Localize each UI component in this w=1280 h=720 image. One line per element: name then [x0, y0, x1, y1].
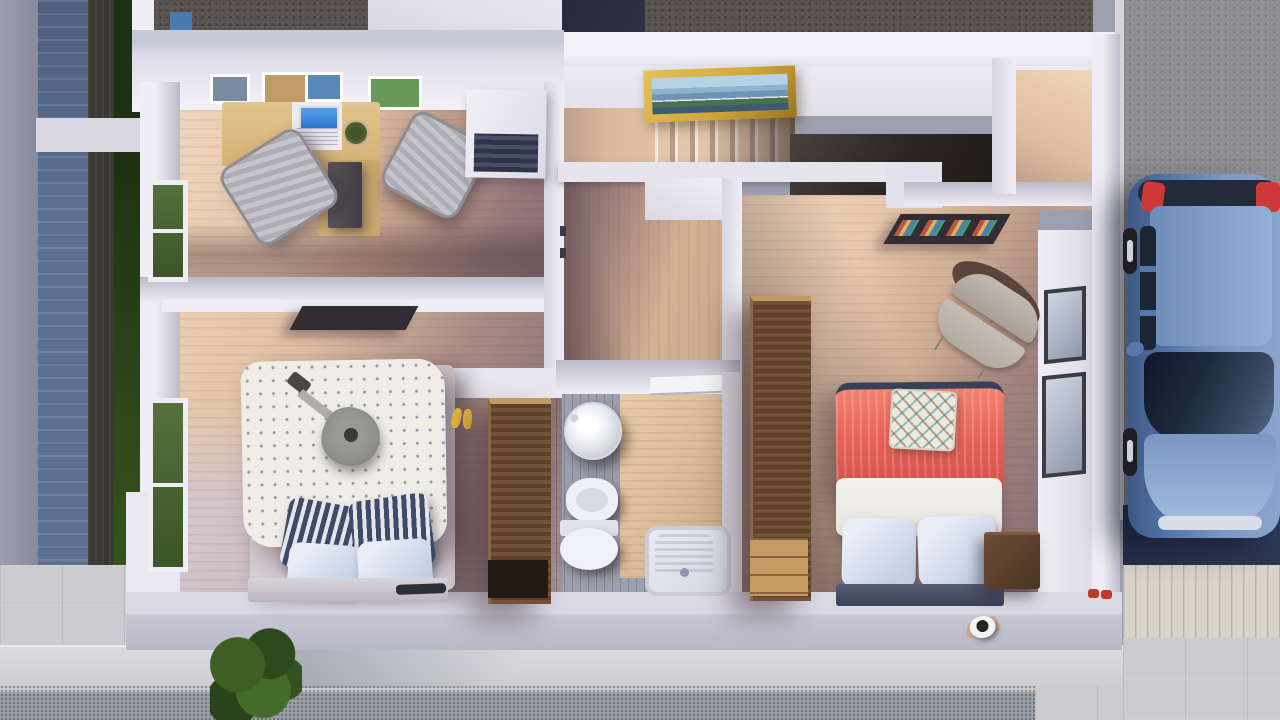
- person: [963, 605, 1004, 652]
- bathroom-door: [650, 375, 727, 396]
- bedroom2-wardrobe-dresser: [750, 538, 808, 596]
- office-dresser-slats: [474, 133, 539, 172]
- bathroom-sink: [564, 402, 622, 460]
- fence-deck: [38, 0, 88, 568]
- car-window-pillar-2: [1140, 310, 1156, 316]
- car-roof: [1150, 206, 1272, 346]
- wall-corridor-bedroom2: [722, 178, 742, 390]
- neighbor-wall: [0, 0, 38, 568]
- shower-drain: [680, 568, 689, 577]
- bedroom2-window-2: [1042, 372, 1086, 479]
- car-windshield: [1144, 352, 1274, 442]
- yellow-slipper-2: [463, 409, 473, 429]
- tree-canopy: [210, 628, 302, 720]
- sink-faucet: [570, 414, 578, 422]
- bedroom2-window-1: [1044, 286, 1086, 364]
- wall-picture-1: [210, 74, 250, 104]
- floorplan-render: 3D rendered top-down floor plan of an up…: [0, 0, 1280, 720]
- phone-on-headboard: [396, 583, 446, 595]
- laptop-screen: [299, 106, 339, 130]
- bedroom1-wall-shelf: [290, 306, 419, 330]
- concrete-slabs-right: [1123, 638, 1280, 720]
- side-connector-wall: [36, 118, 148, 152]
- car-window-pillar-1: [1140, 266, 1156, 272]
- red-slipper-2: [1101, 590, 1112, 599]
- car: [1128, 170, 1280, 550]
- bed2-diamond-cushion: [888, 388, 957, 451]
- bed2-footboard: [836, 584, 1004, 606]
- car-side-windows: [1140, 226, 1156, 350]
- toilet: [560, 528, 618, 570]
- lawn-strip: [0, 685, 1040, 720]
- door-jamb-mark-2: [560, 248, 566, 258]
- car-wheel-rear-rim: [1127, 240, 1133, 262]
- outer-wall-right: [1092, 34, 1120, 644]
- bedroom2-nightstand: [984, 532, 1040, 589]
- bedroom1-window: [148, 398, 188, 572]
- office-window: [148, 180, 188, 282]
- nook-wall: [992, 58, 1016, 194]
- wall-picture-3: [305, 72, 343, 102]
- fence-wood-strip: [88, 0, 114, 568]
- concrete-bottom-mid: [1035, 685, 1123, 720]
- wood-deck: [1123, 565, 1280, 638]
- book-spines: [893, 220, 1000, 236]
- car-wheel-front-rim: [1127, 440, 1133, 462]
- roof-deck-right: [645, 0, 1093, 36]
- red-slipper-1: [1088, 589, 1099, 598]
- landscape-painting: [651, 74, 788, 115]
- bidet-basin: [576, 488, 608, 512]
- wall-picture-2: [262, 72, 310, 106]
- desk-plant: [343, 120, 369, 146]
- car-front-bumper: [1158, 516, 1262, 530]
- bed2-pillow-1: [841, 517, 916, 588]
- bedroom1-wardrobe-base: [488, 560, 548, 598]
- guitar-soundhole: [344, 428, 358, 442]
- door-jamb-mark-1: [560, 226, 566, 236]
